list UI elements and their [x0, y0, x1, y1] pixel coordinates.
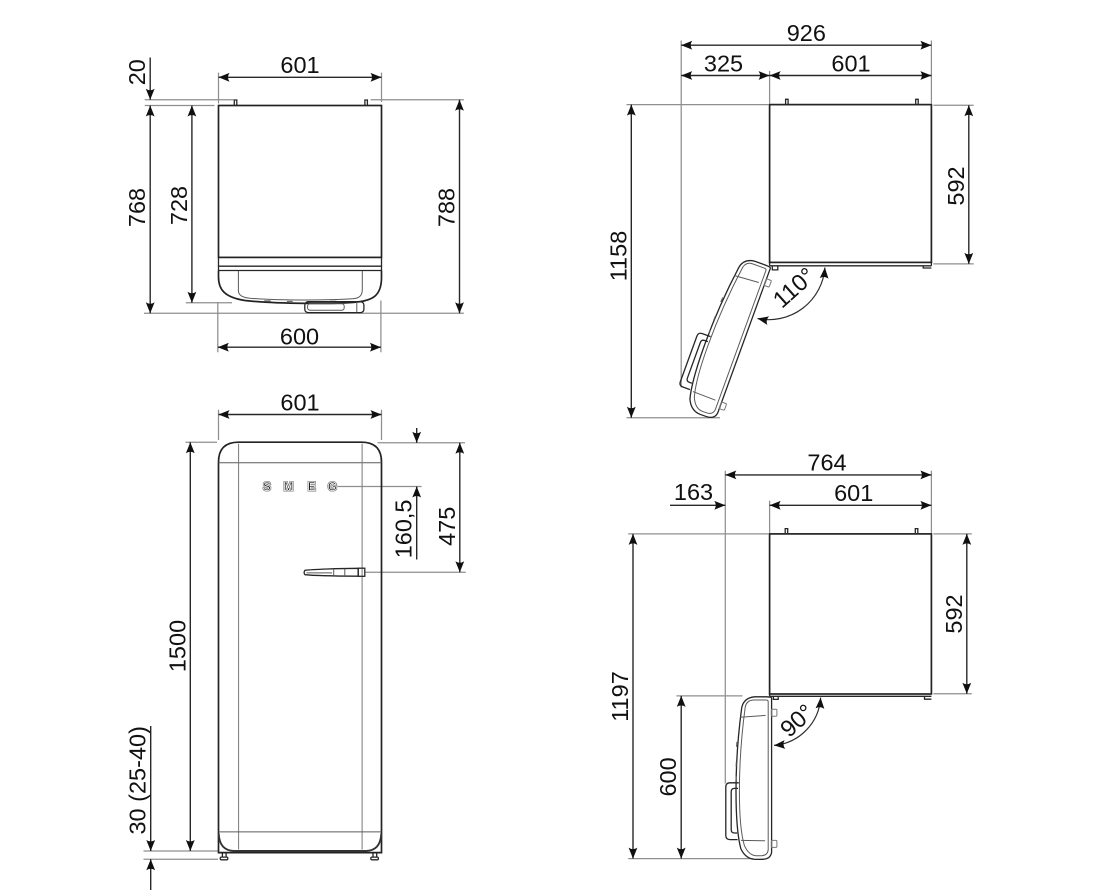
svg-text:592: 592	[943, 166, 969, 205]
svg-text:601: 601	[280, 389, 319, 415]
svg-text:G: G	[328, 482, 337, 494]
svg-text:926: 926	[787, 20, 826, 46]
svg-text:768: 768	[124, 188, 150, 227]
svg-text:20: 20	[124, 59, 150, 85]
svg-text:S: S	[263, 482, 271, 494]
svg-text:325: 325	[704, 50, 743, 76]
svg-text:592: 592	[941, 594, 967, 633]
svg-text:1158: 1158	[605, 231, 631, 282]
svg-text:601: 601	[834, 480, 873, 506]
svg-text:788: 788	[434, 188, 460, 227]
svg-text:764: 764	[807, 450, 846, 476]
svg-text:1197: 1197	[607, 671, 633, 722]
svg-text:M: M	[284, 482, 294, 494]
svg-text:475: 475	[434, 507, 460, 546]
svg-text:1500: 1500	[164, 620, 190, 672]
svg-text:601: 601	[280, 52, 319, 78]
svg-text:601: 601	[831, 50, 870, 76]
svg-text:163: 163	[674, 479, 713, 505]
svg-text:728: 728	[166, 186, 192, 225]
svg-text:E: E	[308, 482, 316, 494]
svg-text:30 (25-40): 30 (25-40)	[125, 726, 151, 834]
svg-text:600: 600	[655, 757, 681, 796]
svg-text:160,5: 160,5	[391, 499, 417, 558]
svg-text:600: 600	[280, 324, 319, 350]
